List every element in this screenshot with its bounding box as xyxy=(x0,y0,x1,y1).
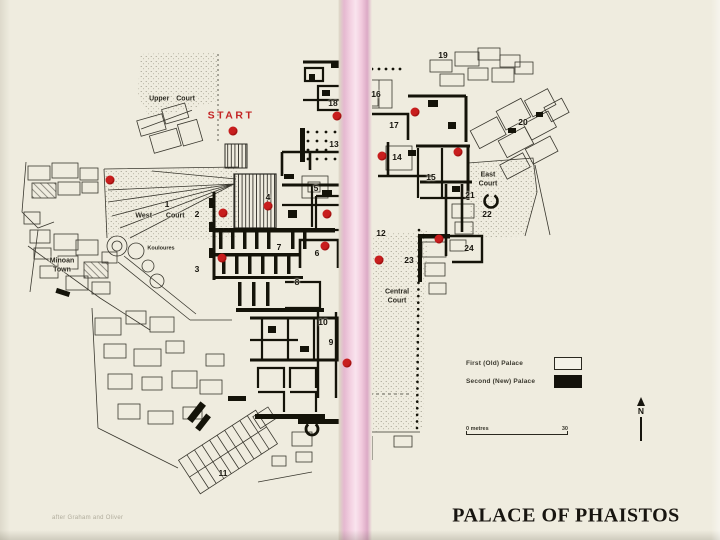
room-number-17: 17 xyxy=(389,120,398,130)
map-marker-dot-12[interactable] xyxy=(435,235,444,244)
map-marker-dot-1[interactable] xyxy=(229,127,238,136)
scale-bar: 0 metres 30 xyxy=(466,426,568,435)
map-marker-dot-7[interactable] xyxy=(321,242,330,251)
map-marker-dot-3[interactable] xyxy=(219,209,228,218)
room-number-2: 2 xyxy=(195,209,200,219)
legend-label-old-palace: First (Old) Palace xyxy=(466,360,548,367)
map-marker-dot-13[interactable] xyxy=(375,256,384,265)
room-number-24: 24 xyxy=(464,243,473,253)
scale-bar-zero-label: 0 metres xyxy=(466,426,489,432)
map-overlay: First (Old) Palace Second (New) Palace 0… xyxy=(0,0,720,540)
room-number-5: 5 xyxy=(314,183,319,193)
map-marker-dot-9[interactable] xyxy=(411,108,420,117)
legend-label-new-palace: Second (New) Palace xyxy=(466,378,548,385)
room-number-1: 1 xyxy=(165,199,170,209)
area-label-start: START xyxy=(208,109,255,122)
room-number-9: 9 xyxy=(329,337,334,347)
room-number-19: 19 xyxy=(438,50,447,60)
legend-row-new-palace: Second (New) Palace xyxy=(466,375,582,388)
area-label-minoan-town: MinoanTown xyxy=(50,257,75,275)
room-number-20: 20 xyxy=(518,117,527,127)
map-marker-dot-8[interactable] xyxy=(333,112,342,121)
room-number-4: 4 xyxy=(266,192,271,202)
room-number-11: 11 xyxy=(219,468,228,478)
page-title: PALACE OF PHAISTOS xyxy=(452,505,680,528)
room-number-16: 16 xyxy=(371,89,380,99)
room-number-6: 6 xyxy=(315,248,320,258)
room-number-21: 21 xyxy=(465,190,474,200)
attribution-note: after Graham and Oliver xyxy=(52,515,123,521)
map-marker-dot-4[interactable] xyxy=(264,202,273,211)
room-number-13: 13 xyxy=(329,139,338,149)
room-number-22: 22 xyxy=(482,209,491,219)
room-number-18: 18 xyxy=(328,98,337,108)
room-number-3: 3 xyxy=(195,264,200,274)
room-number-12: 12 xyxy=(376,228,385,238)
north-arrow-tail xyxy=(640,417,642,441)
room-number-10: 10 xyxy=(318,317,327,327)
map-marker-dot-10[interactable] xyxy=(378,152,387,161)
map-legend: First (Old) Palace Second (New) Palace xyxy=(466,357,582,393)
room-number-8: 8 xyxy=(295,277,300,287)
area-label-kouloures: Kouloures xyxy=(147,246,174,253)
room-number-14: 14 xyxy=(392,152,401,162)
map-marker-dot-2[interactable] xyxy=(106,176,115,185)
room-number-15: 15 xyxy=(426,172,435,182)
legend-swatch-new-palace xyxy=(554,375,582,388)
scale-bar-line xyxy=(466,434,568,435)
map-marker-dot-6[interactable] xyxy=(218,254,227,263)
legend-row-old-palace: First (Old) Palace xyxy=(466,357,582,370)
area-label-upper-court: Upper Court xyxy=(149,96,195,105)
area-label-west-court: West Court xyxy=(135,213,184,222)
north-arrow-head xyxy=(637,397,645,406)
book-page-spread: First (Old) Palace Second (New) Palace 0… xyxy=(0,0,720,540)
area-label-east-court: EastCourt xyxy=(479,171,498,189)
map-marker-dot-14[interactable] xyxy=(343,359,352,368)
legend-swatch-old-palace xyxy=(554,357,582,370)
area-label-central-court: CentralCourt xyxy=(385,288,409,306)
north-arrow: N xyxy=(633,397,649,441)
room-number-23: 23 xyxy=(404,255,413,265)
north-label: N xyxy=(638,407,644,416)
map-marker-dot-5[interactable] xyxy=(323,210,332,219)
map-marker-dot-11[interactable] xyxy=(454,148,463,157)
room-number-7: 7 xyxy=(277,242,282,252)
